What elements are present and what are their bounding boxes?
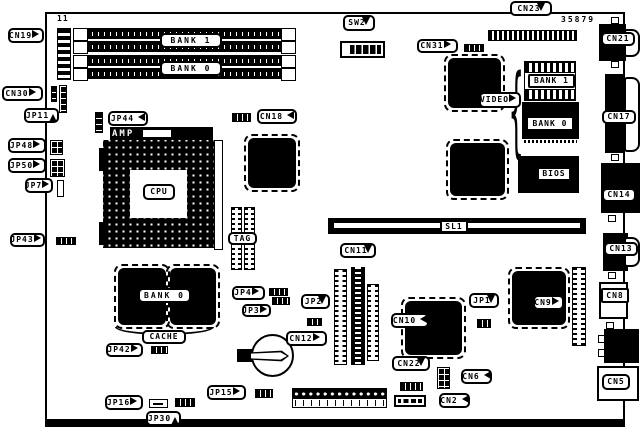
dimm-bank1-label: BANK 1 [160, 33, 222, 48]
cn22-connector [400, 382, 423, 391]
jp3-connector [272, 297, 290, 305]
cn17-label: CN17 [602, 110, 636, 124]
jp50-connector [50, 159, 65, 177]
jp43-connector [56, 237, 76, 245]
cn18-connector [232, 113, 251, 122]
cn6-connector [437, 367, 450, 389]
video-bank0-label: BANK 0 [526, 116, 574, 131]
sw2-dip-switch [340, 41, 385, 58]
jp7-label: JP7 [25, 178, 53, 193]
cn30-label: CN30 [2, 86, 43, 101]
cn2-label: CN2 [439, 393, 470, 408]
cpu-socket-lever [214, 140, 223, 250]
jp44-label: JP44 [108, 111, 148, 126]
jp48-connector [50, 140, 63, 155]
jp42-connector [151, 346, 168, 354]
power-header [292, 388, 387, 408]
edge-tab [608, 215, 616, 222]
jp4-label: JP4 [232, 286, 265, 300]
qfp-chip [248, 138, 296, 188]
video-label: VIDEO [479, 92, 521, 108]
cache-label: CACHE [142, 330, 186, 344]
amp-label: AMP [112, 129, 134, 139]
edge-tab [611, 61, 619, 68]
cn23-connector [488, 30, 577, 41]
cn23-label: CN23 [510, 1, 552, 16]
chipset-chip [405, 301, 462, 355]
cn11-label: CN11 [340, 243, 376, 258]
audio-connector [604, 329, 639, 363]
cn12-connector [334, 269, 347, 365]
cn19-label: CN19 [8, 28, 44, 43]
edge-tab [598, 349, 605, 357]
cn31-label: CN31 [417, 39, 458, 53]
dimm-bank0-label: BANK 0 [160, 61, 222, 76]
jp50-label: JP50 [8, 158, 46, 173]
jp11-connector [59, 85, 67, 113]
jp11-label: JP11 [24, 108, 59, 123]
bios-label: BIOS [537, 167, 571, 181]
part-number: 35879 [561, 16, 595, 24]
edge-tab [611, 17, 619, 24]
jp44-connector [95, 112, 103, 133]
cn5-label: CN5 [602, 374, 630, 390]
cn12-label: CN12 [286, 331, 327, 346]
silkscreen-ref-11: 11 [57, 15, 69, 23]
cpu-label: CPU [143, 184, 175, 200]
video-bank1-label: BANK 1 [528, 74, 575, 88]
edge-tab [611, 154, 619, 161]
jp2-label: JP2 [301, 294, 330, 309]
tag-label: TAG [228, 232, 257, 245]
cn6-label: CN6 [461, 369, 492, 384]
jp42-label: JP42 [106, 343, 143, 357]
socket-tab [99, 148, 104, 171]
cn11-connector [351, 267, 365, 365]
cn14-label: CN14 [602, 188, 636, 202]
edge-tab [608, 272, 616, 279]
edge-tab [598, 335, 605, 343]
jp30-connector [175, 398, 195, 407]
jp2-connector [307, 318, 322, 326]
cn21-label: CN21 [601, 32, 635, 46]
cn10-connector [367, 284, 379, 361]
cn22-label: CN22 [392, 356, 430, 371]
jp48-label: JP48 [8, 138, 46, 153]
jp43-label: JP43 [10, 233, 45, 247]
jp7-connector [57, 180, 64, 197]
cn2-connector [394, 395, 426, 407]
cache-bank0-label: BANK 0 [138, 288, 191, 303]
jp4-connector [269, 288, 288, 296]
cn31-connector [464, 44, 484, 52]
qfp-chip [450, 143, 505, 196]
jp1-connector [477, 319, 491, 328]
voltage-regulator: AMP [110, 127, 213, 140]
jp30-label: JP30 [146, 411, 181, 426]
cn9-label: CN9 [533, 295, 564, 310]
jp1-label: JP1 [469, 293, 499, 308]
cn8-label: CN8 [601, 288, 629, 303]
socket-tab [99, 222, 104, 245]
jp15-label: JP15 [207, 385, 246, 400]
cn19-connector [57, 28, 71, 80]
motherboard-diagram: 11 35879 BANK 1 BANK 0 AMP CPU TAG BANK … [0, 0, 644, 429]
amp-window [143, 130, 171, 137]
jp16-connector [149, 399, 168, 408]
edge-tab [606, 322, 614, 329]
jp3-label: JP3 [242, 304, 271, 317]
cn10-label: CN10 [391, 313, 429, 328]
cn30-connector [51, 86, 57, 102]
cn13-label: CN13 [604, 242, 638, 256]
jp16-label: JP16 [105, 395, 143, 410]
cn18-label: CN18 [257, 109, 297, 124]
sl1-label: SL1 [440, 220, 468, 233]
sw2-label: SW2 [343, 15, 375, 31]
cn9-connector [572, 267, 586, 346]
jp15-connector [255, 389, 273, 398]
